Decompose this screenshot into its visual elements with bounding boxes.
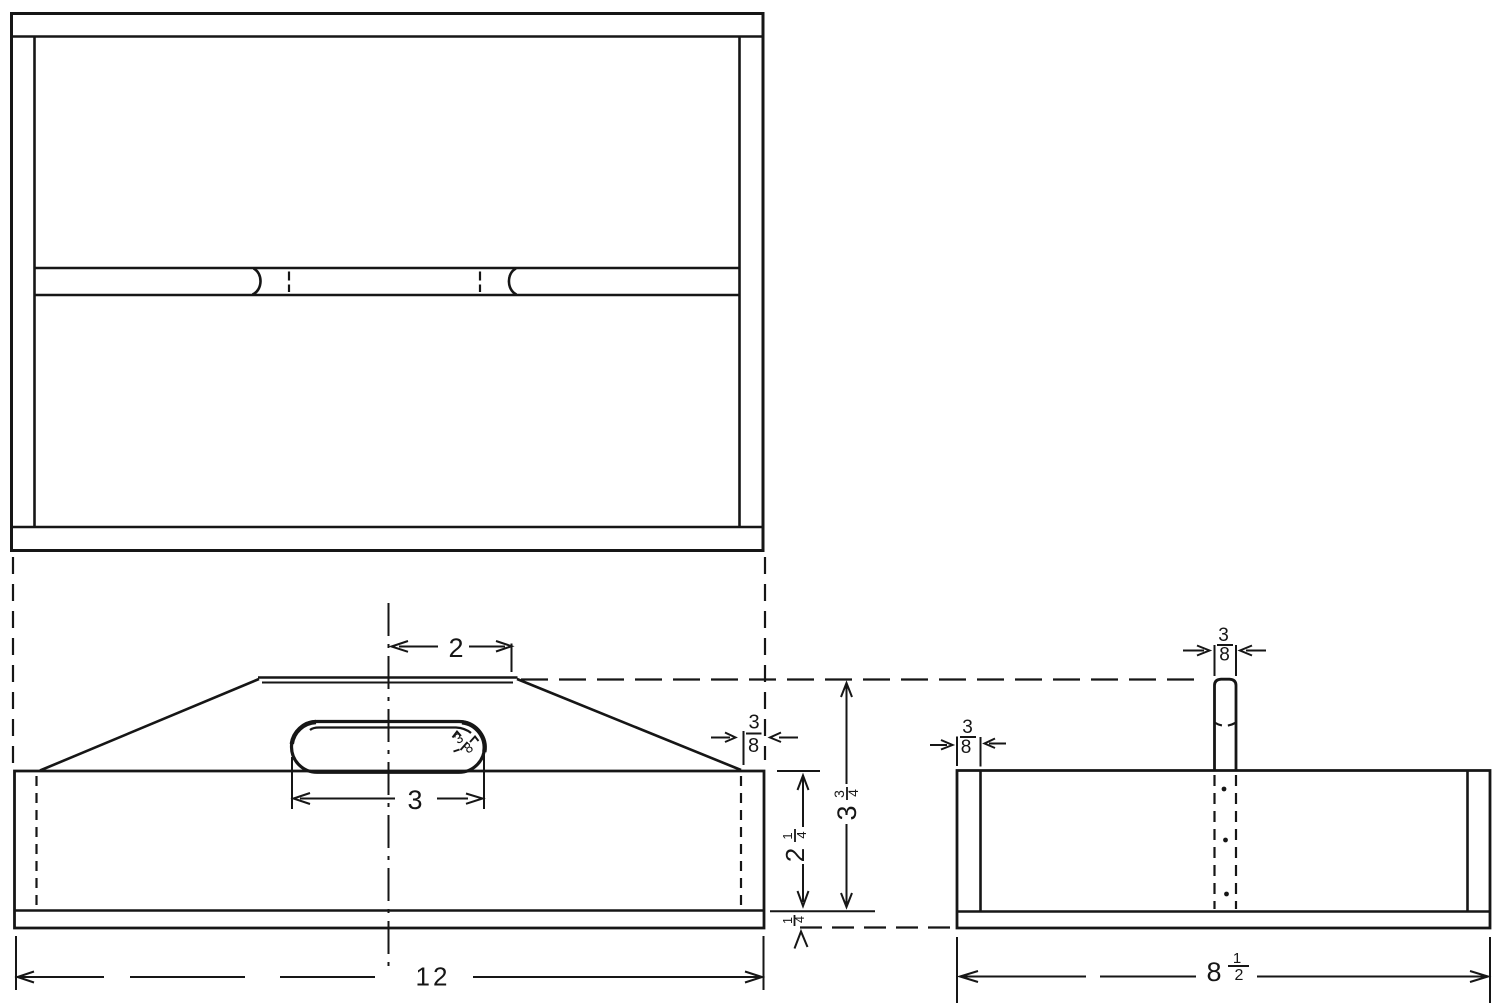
- svg-text:2: 2: [448, 633, 463, 663]
- svg-text:8: 8: [461, 739, 476, 757]
- svg-text:3: 3: [962, 717, 973, 738]
- svg-text:8: 8: [1206, 957, 1221, 987]
- svg-text:1: 1: [1233, 950, 1241, 967]
- svg-text:4: 4: [793, 916, 807, 923]
- svg-text:3: 3: [748, 712, 759, 734]
- svg-text:2: 2: [780, 848, 810, 862]
- svg-text:3: 3: [407, 785, 422, 815]
- svg-text:3: 3: [1218, 625, 1229, 646]
- svg-text:3: 3: [832, 805, 862, 820]
- svg-text:12: 12: [416, 962, 451, 992]
- svg-text:8: 8: [961, 737, 972, 758]
- svg-text:4: 4: [845, 789, 861, 797]
- svg-text:2: 2: [1235, 967, 1244, 984]
- svg-text:4: 4: [794, 831, 809, 838]
- svg-text:8: 8: [748, 735, 759, 757]
- svg-text:8: 8: [1219, 645, 1230, 666]
- svg-text:1: 1: [780, 832, 795, 839]
